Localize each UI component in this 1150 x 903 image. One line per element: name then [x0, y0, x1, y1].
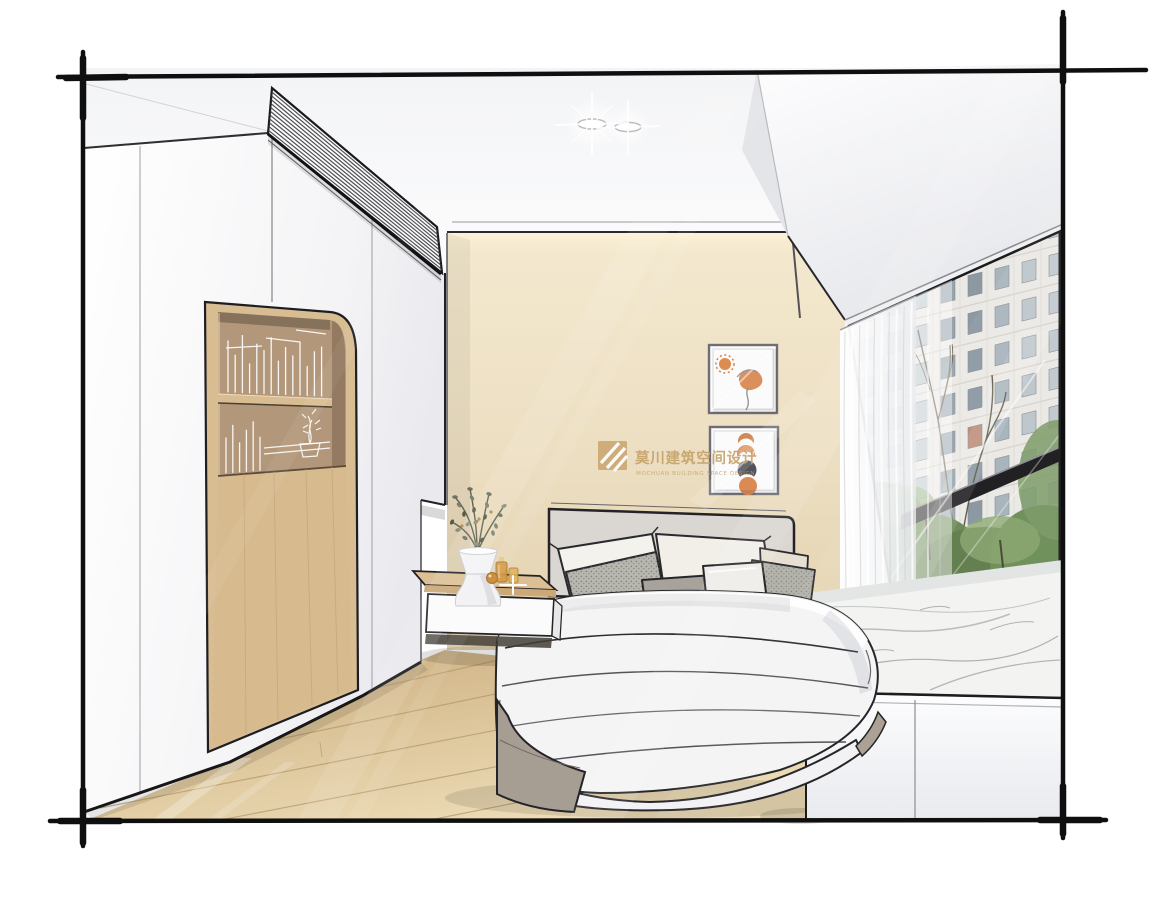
mochuan-logo-icon: [598, 441, 627, 471]
watermark-text-cn: 莫川建筑空间设计: [635, 449, 757, 467]
sun-icon: [719, 358, 731, 370]
art-frame-flower: [709, 345, 777, 413]
bedroom-sketch-rendering: 知末: [0, 0, 1150, 903]
rendering-canvas: 知末: [0, 0, 1150, 903]
watermark-text-en: MOCHUAN BUILDING SPACE DESIGN: [636, 471, 755, 477]
